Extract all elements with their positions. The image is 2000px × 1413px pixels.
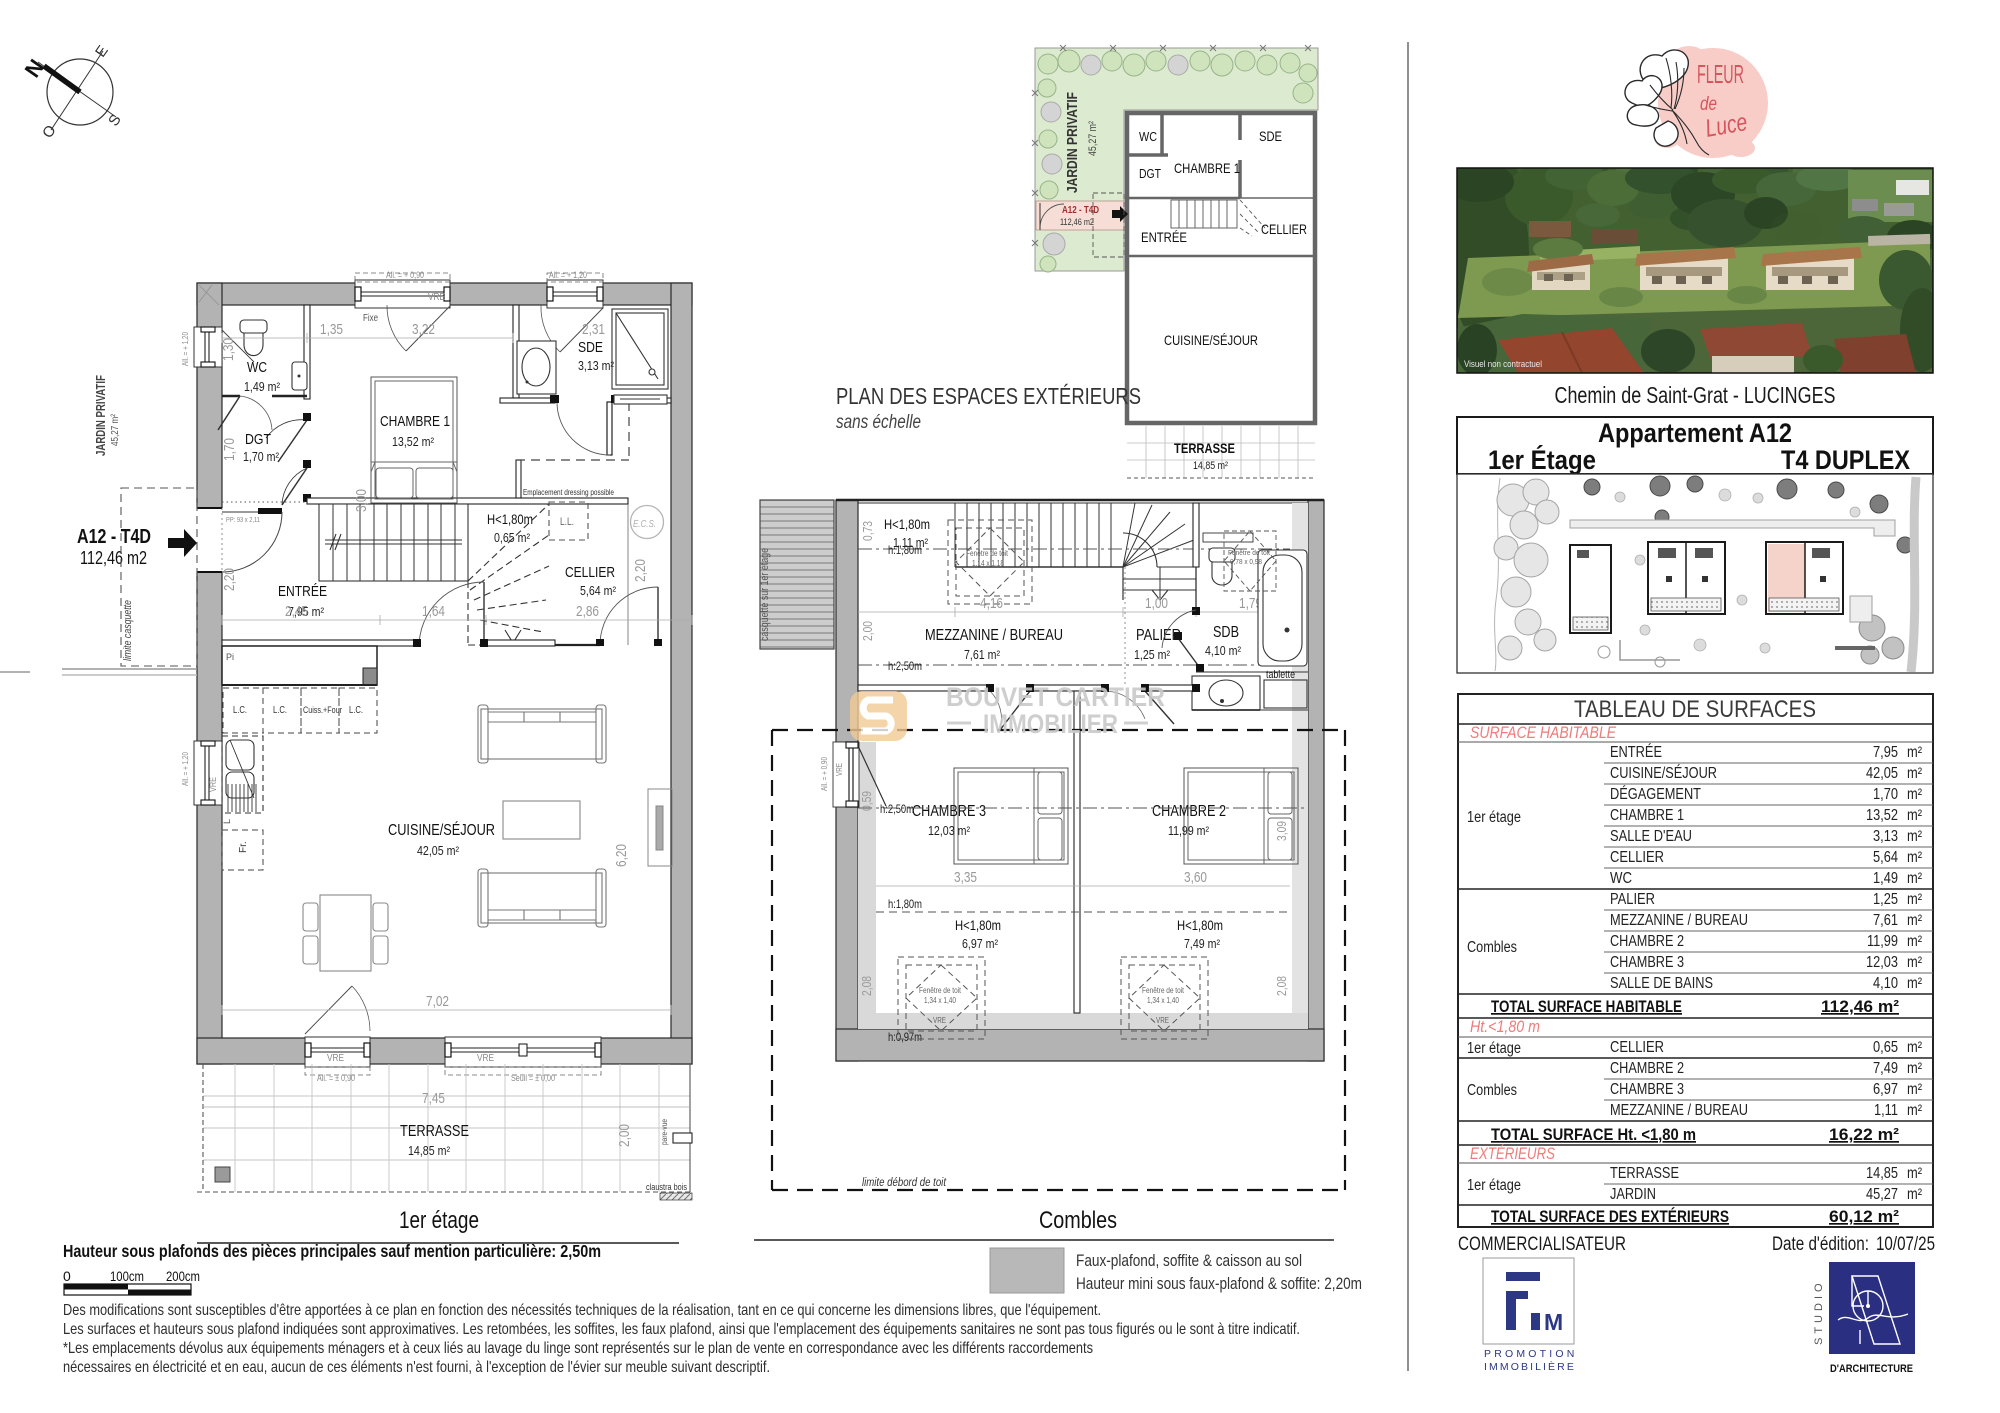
svg-text:5,64: 5,64	[1873, 849, 1898, 866]
svg-text:1,30: 1,30	[220, 338, 237, 361]
svg-text:Combles: Combles	[1467, 1082, 1517, 1099]
svg-text:m²: m²	[1907, 1165, 1922, 1182]
svg-text:Visuel non contractuel: Visuel non contractuel	[1464, 359, 1542, 370]
svg-text:VRE: VRE	[834, 763, 844, 776]
svg-text:11,99 m²: 11,99 m²	[1168, 823, 1210, 838]
svg-text:6,97 m²: 6,97 m²	[962, 936, 999, 951]
svg-text:3,35: 3,35	[954, 869, 977, 886]
svg-text:sans échelle: sans échelle	[836, 412, 921, 433]
svg-text:1er étage: 1er étage	[1467, 809, 1521, 826]
svg-text:13,52 m²: 13,52 m²	[392, 434, 435, 449]
svg-text:5,64 m²: 5,64 m²	[580, 583, 617, 598]
svg-text:CHAMBRE 3: CHAMBRE 3	[1610, 1081, 1684, 1098]
svg-text:m²: m²	[1907, 1102, 1922, 1119]
svg-text:0: 0	[63, 1268, 71, 1284]
svg-text:m²: m²	[1907, 765, 1922, 782]
svg-text:JARDIN PRIVATIF: JARDIN PRIVATIF	[1064, 92, 1081, 193]
svg-text:JARDIN PRIVATIF: JARDIN PRIVATIF	[94, 375, 108, 456]
svg-text:2,00: 2,00	[616, 1124, 633, 1147]
svg-text:CHAMBRE 2: CHAMBRE 2	[1610, 1060, 1684, 1077]
svg-text:1,25 m²: 1,25 m²	[1134, 647, 1171, 662]
svg-text:1,14 x 1,18: 1,14 x 1,18	[972, 559, 1004, 568]
svg-text:CUISINE/SÉJOUR: CUISINE/SÉJOUR	[388, 822, 495, 839]
svg-text:WC: WC	[1610, 870, 1632, 887]
svg-text:3,00: 3,00	[353, 489, 370, 512]
svg-text:1,25: 1,25	[1873, 891, 1898, 908]
svg-text:M: M	[1544, 1309, 1563, 1335]
svg-text:1,70: 1,70	[1873, 786, 1898, 803]
svg-text:h:2,50m: h:2,50m	[880, 802, 914, 816]
svg-text:3,13 m²: 3,13 m²	[578, 358, 615, 373]
svg-text:SALLE D'EAU: SALLE D'EAU	[1610, 828, 1692, 845]
svg-text:7,49: 7,49	[1873, 1060, 1898, 1077]
svg-text:1,00: 1,00	[1145, 595, 1168, 612]
svg-text:casquette sur 1er étage: casquette sur 1er étage	[759, 548, 771, 641]
svg-text:12,03 m²: 12,03 m²	[928, 823, 971, 838]
svg-text:TERRASSE: TERRASSE	[400, 1123, 469, 1140]
svg-text:0,59: 0,59	[859, 791, 874, 811]
svg-text:limite casquette: limite casquette	[122, 600, 134, 661]
svg-text:7,95: 7,95	[1873, 744, 1898, 761]
svg-text:16,22 m²: 16,22 m²	[1829, 1125, 1899, 1144]
svg-text:h:0,97m: h:0,97m	[888, 1030, 922, 1044]
svg-text:3,13: 3,13	[1873, 828, 1898, 845]
svg-text:VRE: VRE	[208, 777, 218, 792]
svg-text:14,85: 14,85	[1866, 1165, 1898, 1182]
svg-text:42,05: 42,05	[1866, 765, 1898, 782]
svg-text:4,10 m²: 4,10 m²	[1205, 643, 1242, 658]
svg-text:PALIER: PALIER	[1610, 891, 1655, 908]
svg-text:DÉGAGEMENT: DÉGAGEMENT	[1610, 786, 1701, 803]
svg-text:limite débord de toit: limite débord de toit	[862, 1175, 947, 1189]
svg-text:PLAN DES ESPACES EXTÉRIEURS: PLAN DES ESPACES EXTÉRIEURS	[836, 383, 1141, 409]
svg-text:tablette: tablette	[1266, 669, 1295, 681]
svg-text:SDE: SDE	[1259, 128, 1282, 144]
svg-text:7,45: 7,45	[422, 1090, 445, 1107]
svg-text:ENTRÉE: ENTRÉE	[1141, 229, 1187, 245]
svg-text:CHAMBRE 2: CHAMBRE 2	[1610, 933, 1684, 950]
svg-text:Des modifications sont suscept: Des modifications sont susceptibles d'êt…	[63, 1302, 1101, 1319]
svg-text:BOUVET CARTIER: BOUVET CARTIER	[946, 682, 1165, 712]
svg-text:All. = + 1,20: All. = + 1,20	[180, 752, 190, 786]
svg-text:VRE: VRE	[327, 1053, 344, 1064]
svg-text:1er étage: 1er étage	[1467, 1177, 1521, 1194]
svg-text:pare-vue: pare-vue	[659, 1119, 669, 1145]
svg-text:E.C.S.: E.C.S.	[633, 519, 656, 530]
svg-text:CUISINE/SÉJOUR: CUISINE/SÉJOUR	[1610, 765, 1717, 782]
svg-text:SURFACE HABITABLE: SURFACE HABITABLE	[1470, 723, 1617, 742]
svg-text:H<1,80m: H<1,80m	[487, 511, 533, 527]
svg-text:45,27 m²: 45,27 m²	[109, 414, 121, 446]
svg-text:CELLIER: CELLIER	[565, 564, 615, 581]
svg-text:Fenêtre de toit: Fenêtre de toit	[919, 986, 962, 995]
svg-text:CELLIER: CELLIER	[1261, 221, 1307, 237]
svg-text:DGT: DGT	[245, 431, 271, 448]
svg-text:Fenêtre de toit: Fenêtre de toit	[1142, 986, 1185, 995]
svg-text:12,03: 12,03	[1866, 954, 1898, 971]
svg-text:m²: m²	[1907, 828, 1922, 845]
svg-text:CELLIER: CELLIER	[1610, 1039, 1664, 1056]
svg-text:m²: m²	[1907, 891, 1922, 908]
svg-text:m²: m²	[1907, 1039, 1922, 1056]
svg-text:1,11: 1,11	[1874, 1102, 1898, 1119]
svg-text:6,97: 6,97	[1873, 1081, 1898, 1098]
svg-text:1,34 x 1,40: 1,34 x 1,40	[924, 996, 956, 1005]
svg-text:MEZZANINE / BUREAU: MEZZANINE / BUREAU	[1610, 1102, 1748, 1119]
svg-text:TOTAL SURFACE Ht. <1,80 m: TOTAL SURFACE Ht. <1,80 m	[1491, 1125, 1696, 1144]
svg-text:Les surfaces et hauteurs sous: Les surfaces et hauteurs sous plafond in…	[63, 1321, 1300, 1338]
svg-text:Date d'édition:: Date d'édition:	[1772, 1234, 1869, 1255]
svg-text:45,27: 45,27	[1866, 1186, 1898, 1203]
svg-text:Ht.<1,80 m: Ht.<1,80 m	[1470, 1017, 1540, 1036]
svg-text:3,09: 3,09	[1274, 821, 1289, 841]
svg-text:7,49 m²: 7,49 m²	[1184, 936, 1221, 951]
svg-text:4,16: 4,16	[980, 595, 1003, 612]
svg-text:1,70 m²: 1,70 m²	[243, 449, 280, 464]
svg-text:60,12 m²: 60,12 m²	[1829, 1207, 1899, 1226]
svg-text:7,61 m²: 7,61 m²	[964, 647, 1001, 662]
svg-text:MEZZANINE / BUREAU: MEZZANINE / BUREAU	[925, 627, 1063, 644]
svg-text:All. = + 1,20: All. = + 1,20	[549, 270, 587, 280]
svg-text:nécessaires en électricité et: nécessaires en électricité et en eau, au…	[63, 1359, 770, 1376]
svg-text:Appartement A12: Appartement A12	[1598, 418, 1792, 448]
svg-text:TOTAL SURFACE HABITABLE: TOTAL SURFACE HABITABLE	[1491, 997, 1682, 1016]
svg-text:FLEUR: FLEUR	[1697, 59, 1744, 89]
svg-text:Cuiss.+Four: Cuiss.+Four	[303, 705, 342, 715]
svg-text:TERRASSE: TERRASSE	[1610, 1165, 1679, 1182]
svg-text:0,65 m²: 0,65 m²	[494, 530, 531, 545]
svg-text:Combles: Combles	[1039, 1207, 1117, 1234]
svg-text:H<1,80m: H<1,80m	[955, 917, 1001, 933]
svg-text:2,20: 2,20	[632, 559, 649, 582]
svg-text:TABLEAU DE SURFACES: TABLEAU DE SURFACES	[1574, 696, 1816, 723]
svg-text:A12 - T4D: A12 - T4D	[77, 526, 151, 548]
svg-text:L.C.: L.C.	[273, 705, 287, 716]
svg-text:h:2,50m: h:2,50m	[888, 659, 922, 673]
svg-text:1,49 m²: 1,49 m²	[244, 379, 281, 394]
svg-text:CHAMBRE 1: CHAMBRE 1	[380, 413, 450, 430]
svg-text:WC: WC	[247, 359, 267, 376]
svg-text:Fenêtre de toit: Fenêtre de toit	[1228, 548, 1271, 557]
svg-text:1,11 m²: 1,11 m²	[893, 535, 929, 550]
svg-text:CELLIER: CELLIER	[1610, 849, 1664, 866]
svg-text:m²: m²	[1907, 849, 1922, 866]
svg-text:m²: m²	[1907, 786, 1922, 803]
svg-text:VRE: VRE	[428, 292, 445, 303]
svg-text:m²: m²	[1907, 1060, 1922, 1077]
svg-text:SALLE DE BAINS: SALLE DE BAINS	[1610, 975, 1713, 992]
svg-text:WC: WC	[1139, 129, 1157, 144]
svg-text:2,20: 2,20	[221, 568, 238, 591]
svg-text:Seuil = ± 0,00: Seuil = ± 0,00	[511, 1073, 555, 1083]
svg-text:VRE: VRE	[1156, 1016, 1169, 1025]
svg-text:Combles: Combles	[1467, 939, 1517, 956]
svg-text:EXTÉRIEURS: EXTÉRIEURS	[1470, 1144, 1556, 1163]
svg-text:1,70: 1,70	[221, 438, 238, 461]
svg-text:STUDIO: STUDIO	[1813, 1279, 1825, 1345]
svg-text:m²: m²	[1907, 933, 1922, 950]
svg-text:*Les emplacements dévolus aux: *Les emplacements dévolus aux équipement…	[63, 1340, 1093, 1357]
svg-text:L.C.: L.C.	[349, 705, 363, 716]
svg-text:IMMOBILIÈRE: IMMOBILIÈRE	[1484, 1360, 1576, 1373]
svg-text:VRE: VRE	[477, 1053, 494, 1064]
svg-text:Emplacement dressing possible: Emplacement dressing possible	[523, 488, 614, 497]
svg-text:m²: m²	[1907, 807, 1922, 824]
svg-text:Pi: Pi	[226, 652, 234, 662]
svg-text:All. = + 0,90: All. = + 0,90	[819, 757, 829, 791]
svg-text:Fixe: Fixe	[363, 313, 378, 324]
svg-text:2,45: 2,45	[285, 603, 308, 620]
svg-text:All. = ± 0,90: All. = ± 0,90	[317, 1073, 355, 1083]
svg-text:2,00: 2,00	[860, 621, 875, 641]
svg-text:2,08: 2,08	[859, 976, 874, 996]
svg-text:Fenêtre de toit: Fenêtre de toit	[966, 549, 1009, 558]
svg-text:TOTAL SURFACE DES EXTÉRIEURS: TOTAL SURFACE DES EXTÉRIEURS	[1491, 1207, 1729, 1226]
svg-text:h:1,80m: h:1,80m	[888, 897, 922, 911]
svg-text:Hauteur sous plafonds des pièc: Hauteur sous plafonds des pièces princip…	[63, 1241, 601, 1261]
svg-text:COMMERCIALISATEUR: COMMERCIALISATEUR	[1458, 1234, 1626, 1255]
svg-text:2,08: 2,08	[1274, 976, 1289, 996]
svg-text:PP: 93 x 2,11: PP: 93 x 2,11	[226, 517, 260, 524]
svg-text:TERRASSE: TERRASSE	[1174, 440, 1235, 456]
svg-text:1,64: 1,64	[422, 603, 445, 620]
svg-text:Fr.: Fr.	[238, 841, 249, 853]
svg-text:claustra bois: claustra bois	[646, 1182, 687, 1192]
svg-text:Faux-plafond, soffite & caisso: Faux-plafond, soffite & caisson au sol	[1076, 1251, 1302, 1270]
svg-text:m²: m²	[1907, 870, 1922, 887]
svg-text:7,02: 7,02	[426, 993, 449, 1010]
svg-text:de: de	[1700, 94, 1717, 115]
svg-text:MEZZANINE / BUREAU: MEZZANINE / BUREAU	[1610, 912, 1748, 929]
svg-text:0,78 x 0,98: 0,78 x 0,98	[1230, 557, 1262, 566]
svg-text:10/07/25: 10/07/25	[1876, 1234, 1935, 1255]
svg-text:42,05 m²: 42,05 m²	[417, 843, 460, 858]
svg-text:1er étage: 1er étage	[1467, 1040, 1521, 1057]
svg-text:ENTRÉE: ENTRÉE	[278, 583, 327, 600]
svg-text:SDE: SDE	[578, 339, 603, 356]
svg-text:CHAMBRE 1: CHAMBRE 1	[1610, 807, 1684, 824]
svg-text:L.L.: L.L.	[560, 516, 574, 528]
svg-text:SDB: SDB	[1213, 624, 1239, 641]
svg-text:PROMOTION: PROMOTION	[1484, 1348, 1578, 1360]
svg-text:6,20: 6,20	[613, 844, 630, 867]
svg-text:CUISINE/SÉJOUR: CUISINE/SÉJOUR	[1164, 332, 1258, 348]
svg-text:0,65: 0,65	[1873, 1039, 1898, 1056]
svg-text:1er Étage: 1er Étage	[1488, 444, 1596, 475]
svg-text:1,35: 1,35	[320, 321, 343, 338]
svg-text:VRE: VRE	[933, 1016, 946, 1025]
svg-text:14,85 m²: 14,85 m²	[408, 1143, 451, 1158]
svg-text:112,46 m2: 112,46 m2	[80, 548, 147, 568]
svg-text:All. = + 1,20: All. = + 1,20	[180, 332, 190, 366]
svg-text:H<1,80m: H<1,80m	[884, 516, 930, 532]
svg-text:1,49: 1,49	[1873, 870, 1898, 887]
svg-text:IMMOBILIER: IMMOBILIER	[983, 709, 1118, 739]
svg-text:m²: m²	[1907, 912, 1922, 929]
svg-text:0,73: 0,73	[860, 521, 875, 541]
svg-text:1,34 x 1,40: 1,34 x 1,40	[1147, 996, 1179, 1005]
svg-text:45,27 m²: 45,27 m²	[1087, 121, 1099, 156]
svg-text:m²: m²	[1907, 1186, 1922, 1203]
svg-text:3,22: 3,22	[412, 321, 435, 338]
svg-text:H<1,80m: H<1,80m	[1177, 917, 1223, 933]
svg-text:Hauteur mini sous faux-plafond: Hauteur mini sous faux-plafond & soffite…	[1076, 1274, 1362, 1293]
svg-text:T4 DUPLEX: T4 DUPLEX	[1781, 445, 1910, 475]
svg-text:m²: m²	[1907, 954, 1922, 971]
svg-text:13,52: 13,52	[1866, 807, 1898, 824]
svg-text:112,46 m²: 112,46 m²	[1821, 997, 1899, 1016]
svg-text:CHAMBRE 3: CHAMBRE 3	[1610, 954, 1684, 971]
svg-text:CHAMBRE 2: CHAMBRE 2	[1152, 803, 1226, 820]
svg-text:m²: m²	[1907, 1081, 1922, 1098]
svg-text:14,85 m²: 14,85 m²	[1193, 460, 1228, 472]
svg-text:All. = + 0,90: All. = + 0,90	[386, 270, 424, 280]
svg-text:ENTRÉE: ENTRÉE	[1610, 744, 1662, 761]
svg-text:JARDIN: JARDIN	[1610, 1186, 1656, 1203]
svg-text:1er étage: 1er étage	[399, 1207, 479, 1234]
svg-text:2,31: 2,31	[582, 321, 605, 338]
svg-text:m²: m²	[1907, 975, 1922, 992]
svg-text:200cm: 200cm	[166, 1268, 200, 1284]
svg-text:11,99: 11,99	[1867, 933, 1898, 950]
svg-text:7,61: 7,61	[1873, 912, 1898, 929]
svg-text:Chemin de Saint-Grat - LUCINGE: Chemin de Saint-Grat - LUCINGES	[1555, 382, 1836, 408]
svg-text:DGT: DGT	[1139, 166, 1161, 181]
svg-text:CHAMBRE 1: CHAMBRE 1	[1174, 160, 1240, 176]
svg-text:100cm: 100cm	[110, 1268, 144, 1284]
svg-text:CHAMBRE 3: CHAMBRE 3	[912, 803, 986, 820]
svg-text:3,60: 3,60	[1184, 869, 1207, 886]
svg-text:2,86: 2,86	[576, 603, 599, 620]
svg-text:4,10: 4,10	[1873, 975, 1898, 992]
svg-text:L: L	[222, 819, 232, 824]
svg-text:L.C.: L.C.	[233, 705, 247, 716]
svg-text:112,46 m2: 112,46 m2	[1060, 217, 1094, 227]
svg-text:m²: m²	[1907, 744, 1922, 761]
svg-text:D'ARCHITECTURE: D'ARCHITECTURE	[1830, 1363, 1913, 1375]
